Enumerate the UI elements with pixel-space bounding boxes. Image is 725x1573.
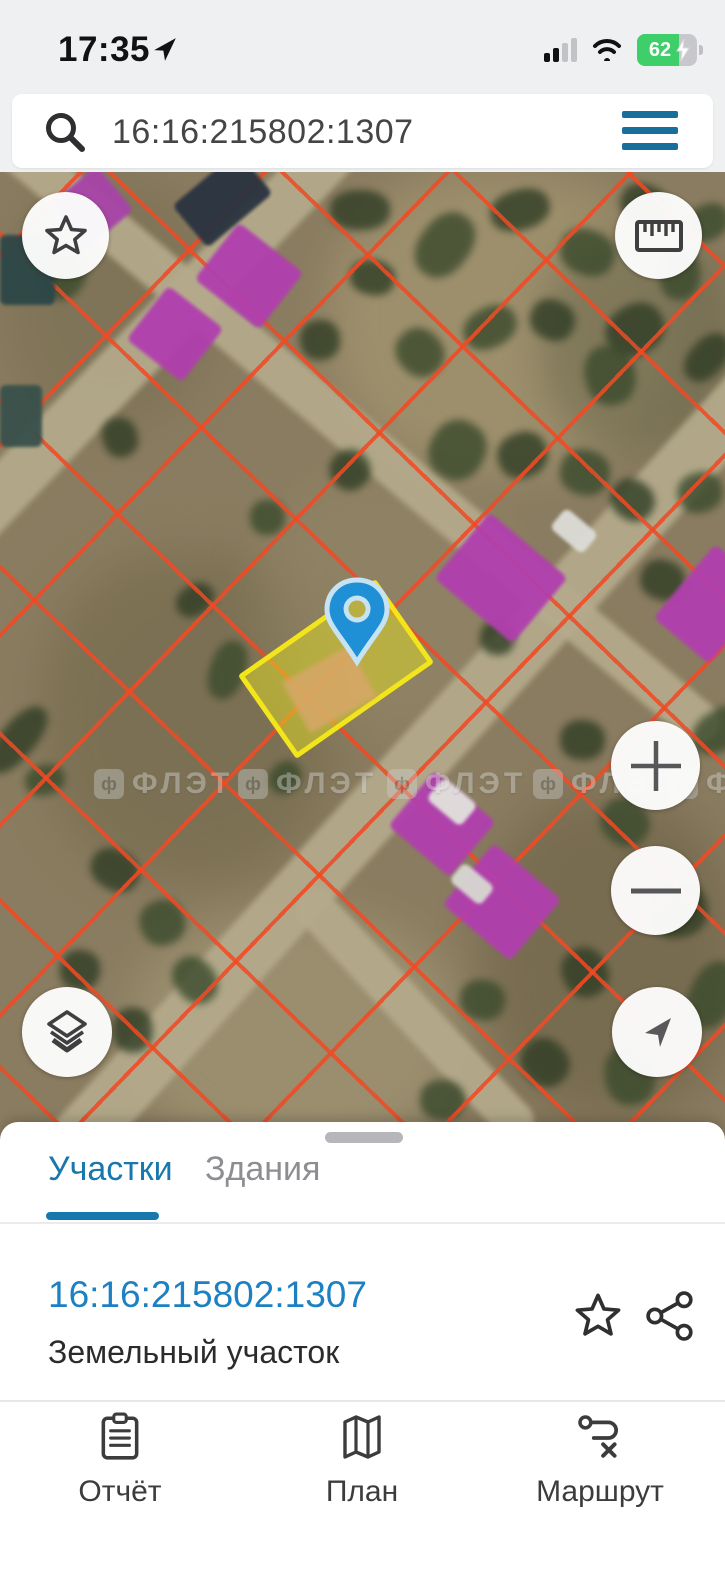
plus-icon	[628, 738, 684, 794]
layers-button[interactable]	[22, 987, 112, 1077]
measure-button[interactable]	[615, 192, 702, 279]
share-icon	[645, 1290, 695, 1342]
ruler-icon	[634, 219, 684, 253]
bottom-navigation: Отчёт План Маршрут	[0, 1402, 725, 1573]
nav-route[interactable]: Маршрут	[520, 1412, 680, 1509]
app-screen: 17:35 62	[0, 0, 725, 1573]
search-input[interactable]: 16:16:215802:1307	[12, 94, 713, 168]
favorites-button[interactable]	[22, 192, 109, 279]
wifi-icon	[590, 35, 624, 66]
clock: 17:35	[58, 30, 150, 70]
share-button[interactable]	[645, 1290, 695, 1347]
zoom-in-button[interactable]	[611, 721, 700, 810]
star-outline-icon	[572, 1290, 624, 1342]
parcel-type-label: Земельный участок	[48, 1334, 339, 1371]
search-value: 16:16:215802:1307	[112, 113, 414, 152]
bookmark-button[interactable]	[572, 1290, 624, 1347]
map-canvas[interactable]: фФЛЭТфФЛЭТфФЛЭТфФЛЭТфФЛЭТ	[0, 172, 725, 1140]
compass-button[interactable]	[612, 987, 702, 1077]
menu-button[interactable]	[622, 111, 678, 151]
map-pin[interactable]	[320, 576, 394, 673]
location-services-icon	[152, 36, 178, 67]
cellular-signal-icon	[544, 38, 577, 62]
nav-plan[interactable]: План	[282, 1412, 442, 1509]
tab-parcels[interactable]: Участки	[48, 1150, 173, 1189]
bottom-sheet: Участки Здания 16:16:215802:1307 Земельн…	[0, 1122, 725, 1573]
nav-report-label: Отчёт	[40, 1475, 200, 1509]
status-bar: 17:35 62	[0, 0, 725, 88]
watermark: фФЛЭТ	[238, 767, 377, 801]
search-area: 16:16:215802:1307	[0, 88, 725, 172]
search-icon	[42, 109, 88, 160]
route-icon	[576, 1412, 624, 1462]
nav-route-label: Маршрут	[520, 1475, 680, 1509]
battery-icon: 62	[637, 34, 703, 66]
minus-icon	[628, 885, 684, 897]
parcel-id-link[interactable]: 16:16:215802:1307	[48, 1274, 367, 1316]
watermark: фФЛЭТ	[387, 767, 526, 801]
divider	[0, 1222, 725, 1224]
active-tab-indicator	[46, 1212, 159, 1220]
report-icon	[97, 1412, 143, 1462]
navigation-arrow-icon	[631, 1006, 683, 1058]
nav-report[interactable]: Отчёт	[40, 1412, 200, 1509]
status-icons: 62	[544, 34, 703, 66]
sheet-drag-handle[interactable]	[325, 1132, 403, 1143]
map-icon	[338, 1412, 386, 1462]
watermark: фФЛЭТ	[94, 767, 233, 801]
zoom-out-button[interactable]	[611, 846, 700, 935]
layers-icon	[41, 1006, 93, 1058]
tab-buildings[interactable]: Здания	[205, 1150, 320, 1189]
star-icon	[42, 212, 90, 260]
charging-bolt-icon	[675, 38, 691, 62]
nav-plan-label: План	[282, 1475, 442, 1509]
